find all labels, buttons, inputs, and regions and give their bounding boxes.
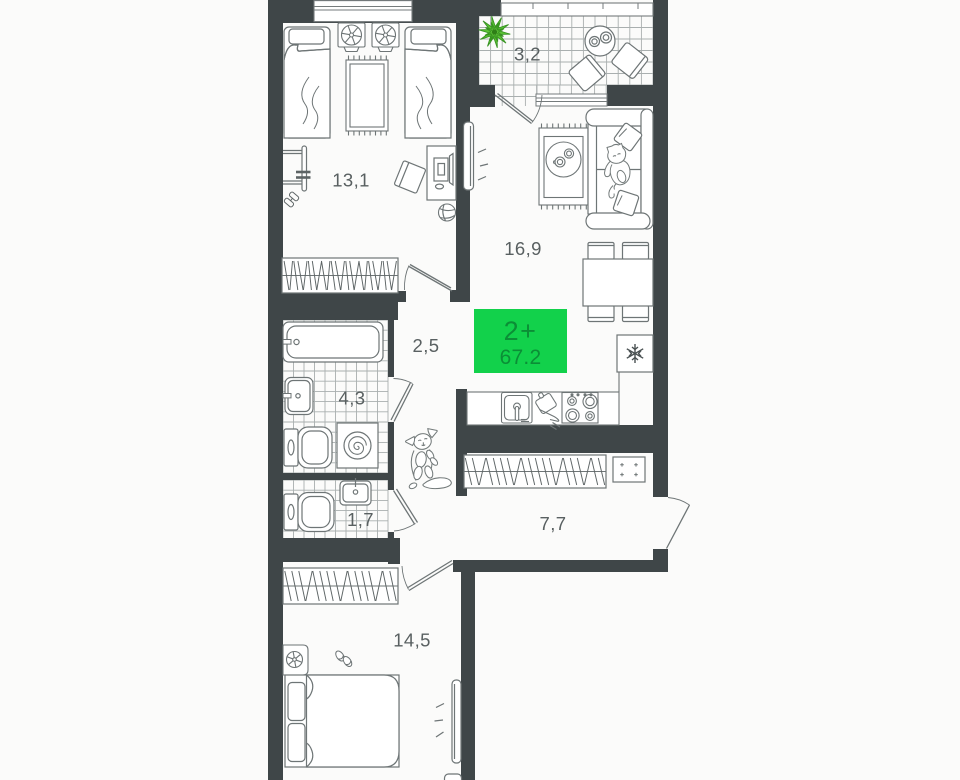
svg-text:67.2: 67.2 [500,346,542,369]
svg-text:13,1: 13,1 [332,170,370,191]
svg-text:4,3: 4,3 [339,388,366,409]
svg-text:3,2: 3,2 [514,44,541,65]
svg-text:7,7: 7,7 [540,513,567,534]
svg-text:14,5: 14,5 [393,630,431,651]
svg-text:2+: 2+ [504,316,538,346]
svg-text:1,7: 1,7 [347,509,374,530]
svg-text:2,5: 2,5 [413,335,440,356]
svg-text:16,9: 16,9 [504,238,542,259]
